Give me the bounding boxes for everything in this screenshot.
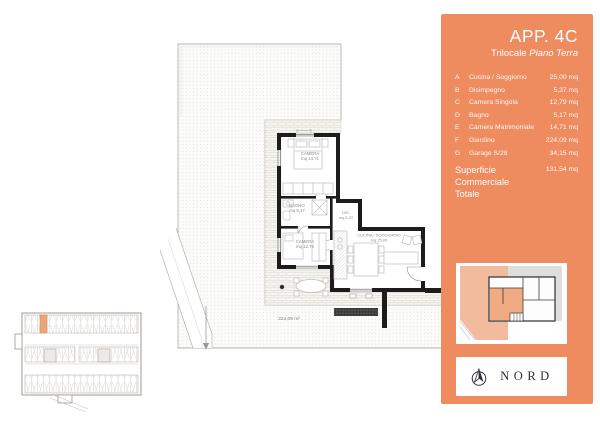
north-box: NORD: [456, 357, 567, 396]
stair-core: [98, 349, 110, 362]
room-row: DBagno5,17 mq: [455, 110, 578, 123]
location-map-box: [456, 263, 567, 344]
room-row: FGiardino224,09 mq: [455, 135, 578, 148]
north-compass-icon: [469, 367, 489, 387]
subtitle-floor: Piano Terra: [529, 48, 578, 59]
tree-symbol: [280, 285, 284, 289]
subtitle-type: Trilocale: [491, 48, 529, 59]
room-row: ECamera Matrimoniale14,71 mq: [455, 122, 578, 135]
wardrobe: [283, 183, 333, 194]
total-surface: Superficie Commerciale Totale 131,54 mq: [455, 165, 578, 201]
dining-table: [354, 243, 378, 276]
svg-text:mq 25,00: mq 25,00: [371, 238, 388, 243]
room-row: CCamera Singola12,79 mq: [455, 97, 578, 110]
apartment-subtitle: Trilocale Piano Terra: [491, 48, 578, 59]
patio-table: [296, 280, 326, 293]
total-label: Superficie Commerciale Totale: [455, 165, 546, 201]
svg-text:mq 12,79: mq 12,79: [296, 244, 315, 249]
floorplan-page: CAMERA mq 14,71 BAGNO mq 5,17 CAMERA mq …: [0, 0, 600, 424]
room-row: GGarage S/2834,15 mq: [455, 148, 578, 161]
gravel-strip: [334, 308, 378, 316]
apartment-title: APP. 4C: [510, 26, 578, 47]
garage-overview-plan: [15, 313, 141, 412]
label-giardino-area: 224,09 m²: [278, 316, 300, 322]
room-list: ACucina / Soggiorno25,00 mq BDisimpegno5…: [455, 72, 578, 160]
highlighted-garage-stall: [40, 315, 47, 333]
sofa: [384, 252, 418, 264]
room-row: BDisimpegno5,37 mq: [455, 85, 578, 98]
svg-text:mq 14,71: mq 14,71: [301, 156, 320, 161]
svg-text:mq 5,37: mq 5,37: [339, 215, 354, 220]
stair-core: [44, 349, 56, 362]
north-label: NORD: [497, 369, 553, 384]
svg-text:mq 5,17: mq 5,17: [289, 208, 305, 213]
kitchen-counter: [334, 231, 347, 279]
room-row: ACucina / Soggiorno25,00 mq: [455, 72, 578, 85]
info-sidebar: APP. 4C Trilocale Piano Terra ACucina / …: [441, 14, 593, 404]
location-map: [456, 263, 567, 344]
map-building: [489, 277, 555, 321]
total-value: 131,54 mq: [546, 165, 578, 201]
